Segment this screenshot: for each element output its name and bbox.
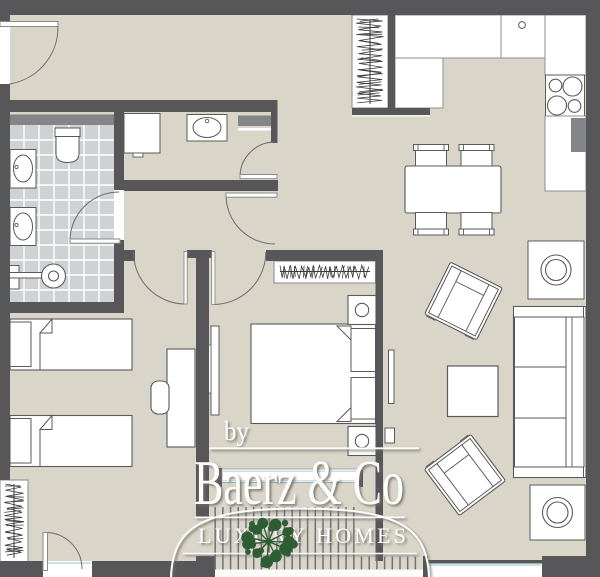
svg-text:Baerz & Co: Baerz & Co <box>194 448 404 518</box>
svg-text:by: by <box>224 416 249 446</box>
